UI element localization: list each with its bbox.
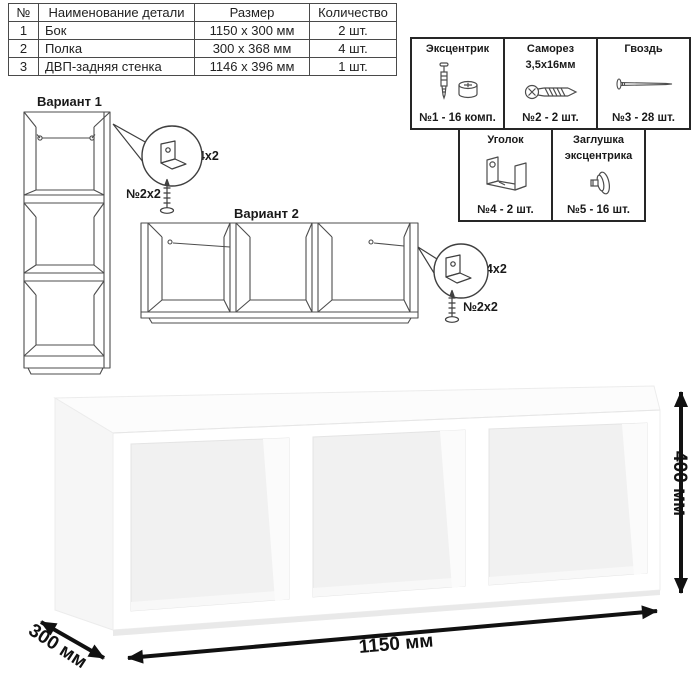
shelf-3d-render bbox=[55, 386, 660, 636]
variant1-shelf-drawing bbox=[24, 112, 110, 374]
assembly-drawings bbox=[0, 0, 700, 690]
variant2-shelf-drawing bbox=[141, 223, 418, 323]
assembly-instruction-sheet: № Наименование детали Размер Количество … bbox=[0, 0, 700, 690]
variant2-callout bbox=[418, 244, 488, 322]
variant1-callout bbox=[113, 124, 202, 213]
